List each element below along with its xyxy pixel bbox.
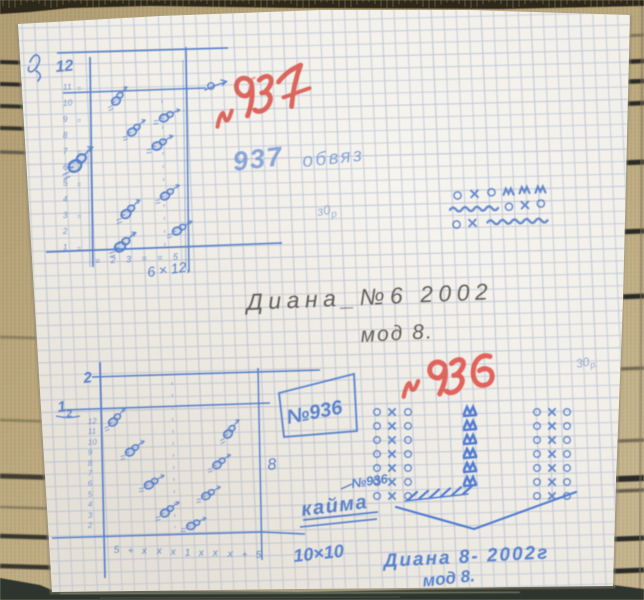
- svg-text:11: 11: [88, 426, 97, 436]
- svg-text:=: =: [77, 246, 81, 253]
- svg-text:10: 10: [88, 437, 98, 447]
- svg-text:12: 12: [88, 416, 98, 426]
- svg-text:10: 10: [62, 97, 72, 108]
- svg-text:=: =: [77, 182, 81, 189]
- svg-text:+: +: [127, 546, 134, 557]
- svg-text:8: 8: [267, 456, 278, 474]
- svg-text:11: 11: [62, 81, 72, 92]
- svg-text:937: 937: [231, 141, 285, 177]
- svg-text:=: =: [77, 86, 81, 93]
- svg-text:+: +: [241, 550, 248, 561]
- svg-text:1: 1: [184, 548, 190, 559]
- svg-text:мод 8.: мод 8.: [360, 320, 434, 347]
- svg-text:12: 12: [55, 57, 74, 75]
- svg-text:=: =: [77, 214, 81, 221]
- svg-text:=: =: [77, 118, 81, 125]
- svg-text:2: 2: [61, 226, 68, 236]
